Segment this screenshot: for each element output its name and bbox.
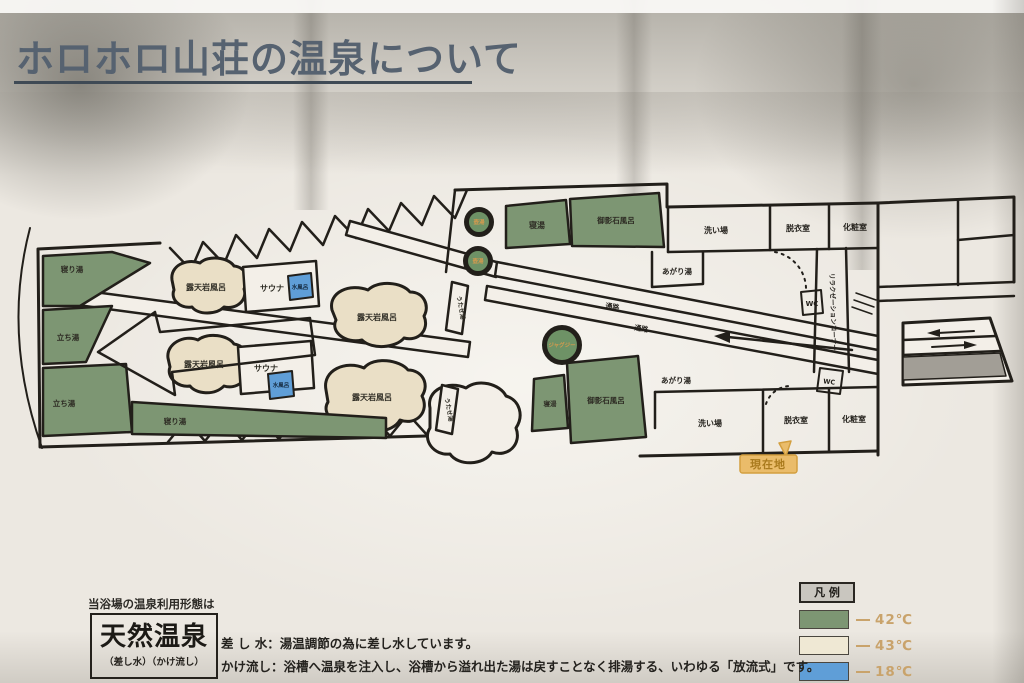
washing-bottom-label: 洗い場 [698,418,722,428]
pot-bath-2-label: 壺湯 [472,257,484,265]
rock-bath-1-label: 露天岩風呂 [186,282,226,292]
legend-label-42: 42℃ [875,612,913,628]
legend-dash [856,671,870,673]
granite-bath-bottom-label: 御影石風呂 [586,395,625,405]
natural-onsen-box: 天然温泉 （差し水）（かけ流し） [90,613,218,679]
legend-label-18: 18℃ [875,664,913,680]
info-line-sashimizu: 差 し 水：湯温調節の為に差し水しています。 [221,633,478,652]
natural-onsen-title: 天然温泉 [100,624,208,651]
legend-dash [856,619,870,621]
legend-row-42: 42℃ [799,610,999,629]
info-heading: 当浴場の温泉利用形態は [88,596,215,612]
pot-bath-1-label: 壺湯 [473,218,485,226]
cold-bath-2-label: 水風呂 [273,381,290,389]
legend-row-18: 18℃ [799,662,999,681]
entrance-block [903,318,1012,385]
rock-bath-4-label: 露天岩風呂 [352,392,392,402]
jacuzzi-label: ジャグジー [548,341,576,349]
rock-bath-3-label: 露天岩風呂 [357,312,397,322]
washing-top-label: 洗い場 [704,225,728,235]
photo-background: ホロホロ山荘の温泉について [0,0,1024,683]
agari-top-label: あがり湯 [662,266,692,276]
powder-bottom-label: 化粧室 [842,414,866,424]
dressing-bottom-label: 脱衣室 [784,415,808,425]
rock-bath-2-label: 露天岩風呂 [184,359,224,369]
wc-1-label: WC [806,300,819,308]
sauna-2-label: サウナ [254,364,278,373]
legend-title: 凡 例 [799,582,855,603]
lying-bath-bottom-label: 寝湯 [544,399,558,408]
lying-bath-top-label: 寝湯 [528,220,545,230]
entrance-stairs [903,353,1006,380]
legend-label-43: 43℃ [875,638,913,654]
standing-bath-1-label: 立ち湯 [57,332,80,342]
legend: 凡 例 42℃ 43℃ 18℃ [799,582,999,681]
corner-bath-1-label: 寝り湯 [61,264,84,274]
cold-bath-1-label: 水風呂 [292,283,309,291]
granite-bath-top-label: 御影石風呂 [596,215,635,225]
floor-plan-svg: 寝り湯 立ち湯 立ち湯 寝り湯 露天岩風呂 露天岩風呂 露天岩風呂 露天岩風呂 … [0,0,1024,683]
powder-top-label: 化粧室 [843,222,867,232]
legend-dash [856,645,870,647]
legend-row-43: 43℃ [799,636,999,655]
natural-onsen-subtitle: （差し水）（かけ流し） [104,654,204,668]
dressing-top-label: 脱衣室 [786,223,810,233]
standing-bath-2-label: 立ち湯 [53,398,76,408]
you-are-here-label: 現在地 [750,457,786,471]
wc-2-label: WC [823,377,836,386]
sauna-1-label: サウナ [260,284,284,293]
legend-swatch-beige [799,636,849,655]
legend-swatch-green [799,610,849,629]
agari-bottom-label: あがり湯 [661,375,691,385]
info-line-kakenagashi: かけ流し：浴槽へ温泉を注入し、浴槽から溢れ出た湯は戻すことなく排湯する、いわゆる… [221,656,819,675]
corner-bath-2-label: 寝り湯 [164,416,187,426]
